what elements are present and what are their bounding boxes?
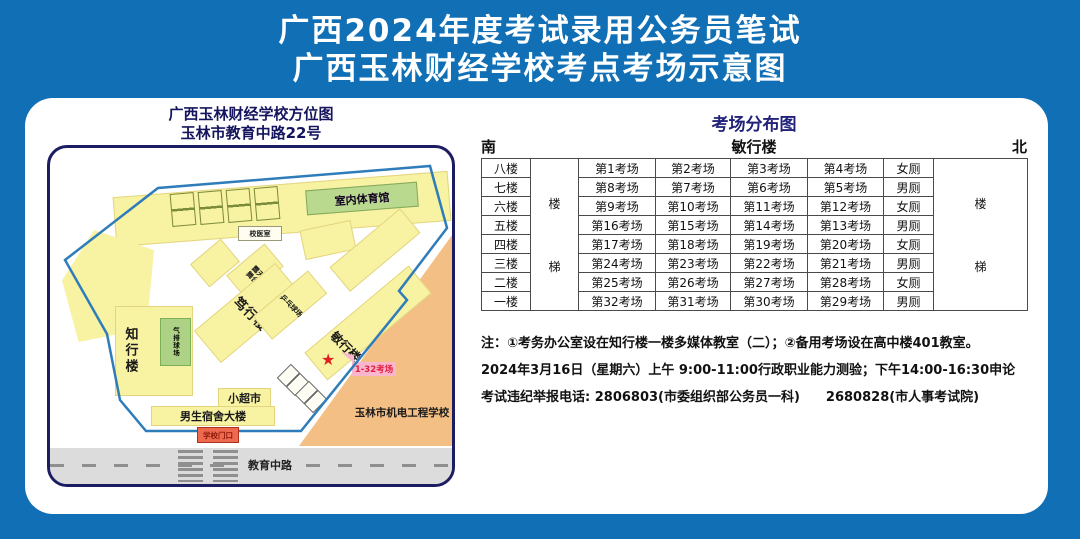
note-line2: 2024年3月16日（星期六）上午 9:00-11:00行政职业能力测验；下午1… [481, 357, 1047, 384]
room-cell: 第32考场 [579, 292, 656, 311]
room-cell: 第10考场 [656, 197, 731, 216]
toilet-cell: 男厕 [884, 178, 934, 197]
room-cell: 第16考场 [579, 216, 656, 235]
toilet-cell: 女厕 [884, 159, 934, 178]
room-cell: 第26考场 [656, 273, 731, 292]
room-cell: 第2考场 [656, 159, 731, 178]
toilet-cell: 女厕 [884, 273, 934, 292]
toilet-cell: 女厕 [884, 197, 934, 216]
room-cell: 第8考场 [579, 178, 656, 197]
direction-row: 南 敏行楼 北 [481, 136, 1027, 154]
map-heading: 广西玉林财经学校方位图 玉林市教育中路22号 [47, 105, 455, 143]
room-cell: 第25考场 [579, 273, 656, 292]
zebra-crossing-1 [178, 450, 203, 482]
room-cell: 第31考场 [656, 292, 731, 311]
school-boundary [50, 148, 455, 487]
poster-title: 广西2024年度考试录用公务员笔试 广西玉林财经学校考点考场示意图 [0, 12, 1080, 88]
floor-cell: 五楼 [482, 216, 531, 235]
room-cell: 第20考场 [808, 235, 884, 254]
toilet-cell: 男厕 [884, 292, 934, 311]
north-label: 北 [1012, 136, 1027, 157]
toilet-cell: 男厕 [884, 254, 934, 273]
notes: 注：①考务办公室设在知行楼一楼多媒体教室（二）；②备用考场设在高中楼401教室。… [481, 330, 1047, 411]
floor-cell: 四楼 [482, 235, 531, 254]
room-cell: 第13考场 [808, 216, 884, 235]
stair-right-cell: 楼 梯 [934, 159, 1028, 311]
school-gate-label: 学校门口 [197, 427, 239, 443]
room-cell: 第15考场 [656, 216, 731, 235]
floor-cell: 一楼 [482, 292, 531, 311]
note-line1: 注：①考务办公室设在知行楼一楼多媒体教室（二）；②备用考场设在高中楼401教室。 [481, 330, 1047, 357]
floor-cell: 二楼 [482, 273, 531, 292]
distribution-title: 考场分布图 [481, 110, 1027, 135]
room-cell: 第4考场 [808, 159, 884, 178]
room-cell: 第7考场 [656, 178, 731, 197]
toilet-cell: 男厕 [884, 216, 934, 235]
stair-left-cell: 楼 梯 [531, 159, 579, 311]
building-name-label: 敏行楼 [481, 136, 1027, 157]
room-cell: 第18考场 [656, 235, 731, 254]
content-panel: 广西玉林财经学校方位图 玉林市教育中路22号 室内体育馆 校医室 知行楼 气排球… [25, 98, 1048, 514]
room-cell: 第9考场 [579, 197, 656, 216]
map-heading-line1: 广西玉林财经学校方位图 [47, 105, 455, 124]
campus-map: 室内体育馆 校医室 知行楼 气排球场 露天 舞台 笃行楼 乒乓球场 敏行楼 ★ … [47, 145, 455, 487]
room-cell: 第24考场 [579, 254, 656, 273]
room-cell: 第17考场 [579, 235, 656, 254]
room-cell: 第12考场 [808, 197, 884, 216]
floor-cell: 三楼 [482, 254, 531, 273]
room-cell: 第30考场 [731, 292, 808, 311]
room-cell: 第28考场 [808, 273, 884, 292]
room-cell: 第11考场 [731, 197, 808, 216]
room-cell: 第23考场 [656, 254, 731, 273]
room-cell: 第19考场 [731, 235, 808, 254]
neighbor-school-label: 玉林市机电工程学校 [348, 404, 455, 420]
map-heading-line2: 玉林市教育中路22号 [47, 124, 455, 143]
poster-title-line2: 广西玉林财经学校考点考场示意图 [0, 50, 1080, 88]
room-cell: 第1考场 [579, 159, 656, 178]
floor-cell: 八楼 [482, 159, 531, 178]
room-cell: 第5考场 [808, 178, 884, 197]
room-cell: 第21考场 [808, 254, 884, 273]
floor-cell: 六楼 [482, 197, 531, 216]
floor-cell: 七楼 [482, 178, 531, 197]
room-cell: 第14考场 [731, 216, 808, 235]
note-line3: 考试违纪举报电话: 2806803(市委组织部公务员一科) 2680828(市人… [481, 384, 1047, 411]
table-row: 八楼 楼 梯 第1考场 第2考场 第3考场 第4考场 女厕 楼 梯 [482, 159, 1028, 178]
exam-room-table: 八楼 楼 梯 第1考场 第2考场 第3考场 第4考场 女厕 楼 梯 七楼 第8考… [481, 158, 1028, 311]
zebra-crossing-2 [213, 450, 238, 482]
room-cell: 第3考场 [731, 159, 808, 178]
room-cell: 第6考场 [731, 178, 808, 197]
road-label: 教育中路 [240, 454, 300, 478]
toilet-cell: 女厕 [884, 235, 934, 254]
room-cell: 第27考场 [731, 273, 808, 292]
room-cell: 第22考场 [731, 254, 808, 273]
room-cell: 第29考场 [808, 292, 884, 311]
poster-title-line1: 广西2024年度考试录用公务员笔试 [0, 12, 1080, 50]
